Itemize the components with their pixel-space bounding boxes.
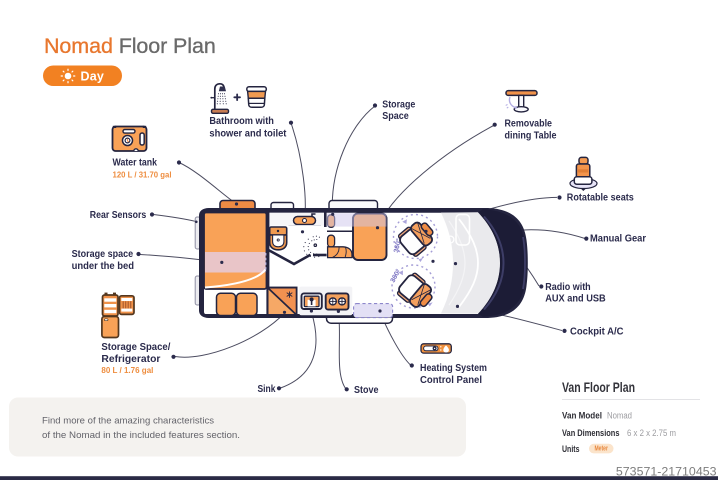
svg-text:Manual Gear: Manual Gear — [590, 234, 646, 245]
svg-text:Van Dimensions: Van Dimensions — [562, 428, 620, 438]
svg-text:Find more of the amazing chara: Find more of the amazing characteristics — [42, 416, 214, 427]
svg-text:dining Table: dining Table — [505, 131, 557, 142]
svg-text:Removable: Removable — [505, 119, 553, 130]
svg-text:Stove: Stove — [354, 385, 379, 396]
svg-text:Sink: Sink — [258, 384, 276, 395]
svg-text:Rotatable seats: Rotatable seats — [567, 193, 635, 204]
svg-text:Meter: Meter — [594, 446, 608, 453]
svg-text:Rear Sensors: Rear Sensors — [90, 210, 147, 221]
svg-text:Control Panel: Control Panel — [420, 375, 482, 386]
svg-text:of the Nomad in the included f: of the Nomad in the included features se… — [42, 430, 240, 441]
svg-text:Heating System: Heating System — [420, 363, 487, 374]
svg-text:AUX and USB: AUX and USB — [545, 294, 606, 305]
svg-text:573571-21710453: 573571-21710453 — [616, 464, 717, 478]
svg-text:Cockpit A/C: Cockpit A/C — [570, 326, 624, 337]
svg-text:Storage: Storage — [382, 100, 415, 111]
svg-text:Storage space: Storage space — [72, 249, 134, 260]
svg-text:Radio with: Radio with — [545, 282, 591, 293]
svg-text:Day: Day — [81, 70, 105, 84]
svg-text:Refrigerator: Refrigerator — [101, 354, 160, 365]
svg-text:under the bed: under the bed — [72, 261, 135, 272]
svg-text:Storage Space/: Storage Space/ — [101, 342, 170, 353]
svg-text:Nomad: Nomad — [607, 410, 632, 420]
svg-text:Units: Units — [562, 444, 580, 454]
svg-text:Bathroom with: Bathroom with — [209, 116, 274, 127]
svg-text:shower and toilet: shower and toilet — [209, 128, 287, 139]
svg-text:6 x 2 x 2.75 m: 6 x 2 x 2.75 m — [627, 428, 676, 438]
svg-text:120 L / 31.70 gal: 120 L / 31.70 gal — [113, 170, 172, 179]
svg-text:Nomad Floor Plan: Nomad Floor Plan — [44, 34, 216, 58]
svg-text:Water tank: Water tank — [113, 157, 158, 168]
svg-text:Van Model: Van Model — [562, 410, 602, 420]
svg-text:Space: Space — [382, 111, 409, 122]
svg-text:80 L / 1.76 gal: 80 L / 1.76 gal — [101, 366, 153, 375]
svg-text:Van Floor Plan: Van Floor Plan — [562, 379, 635, 395]
